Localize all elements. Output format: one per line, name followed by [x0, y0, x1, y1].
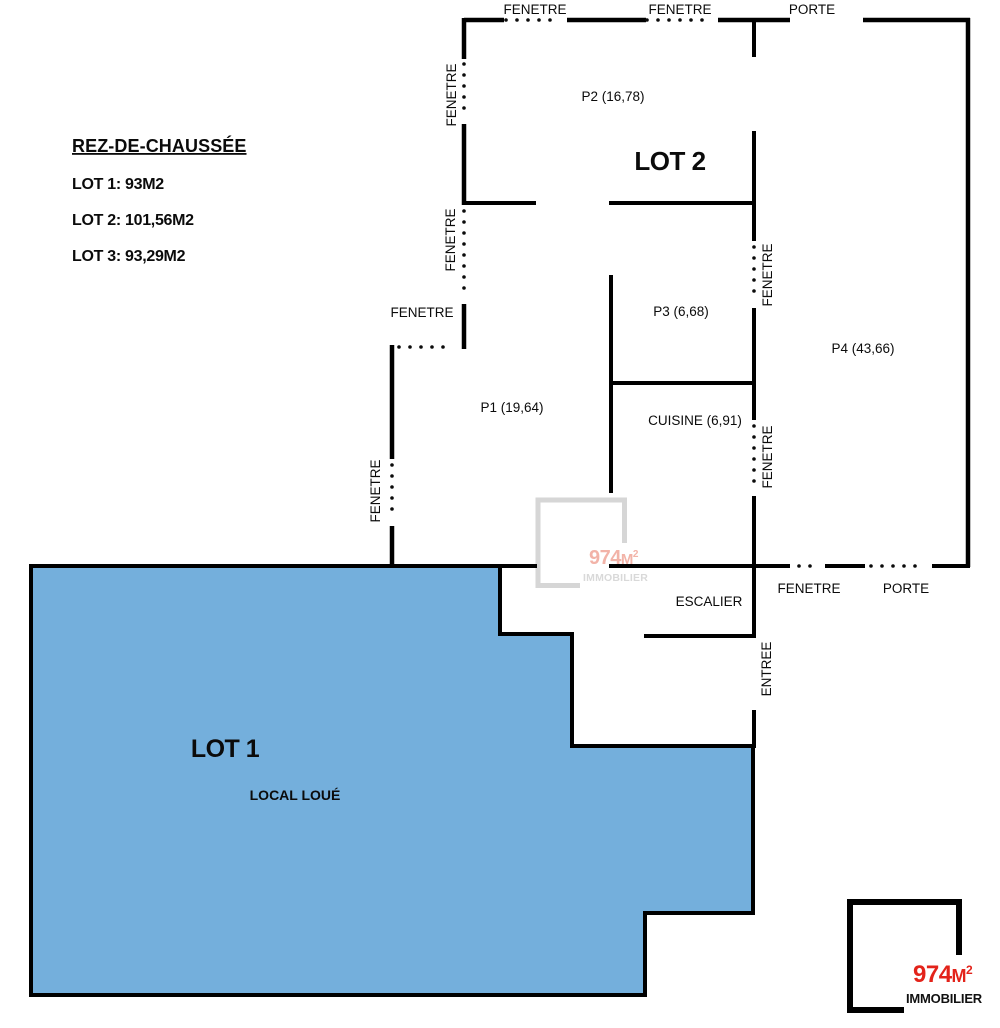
svg-text:IMMOBILIER: IMMOBILIER — [583, 572, 648, 584]
svg-text:LOCAL LOUÉ: LOCAL LOUÉ — [250, 787, 341, 803]
svg-text:ENTREE: ENTREE — [759, 642, 774, 697]
svg-text:P1 (19,64): P1 (19,64) — [480, 400, 543, 415]
svg-text:LOT 1: LOT 1 — [191, 735, 260, 763]
svg-text:FENETRE: FENETRE — [760, 425, 775, 488]
svg-text:LOT 2: LOT 2 — [634, 146, 705, 176]
svg-text:ESCALIER: ESCALIER — [676, 594, 743, 609]
svg-text:REZ-DE-CHAUSSÉE: REZ-DE-CHAUSSÉE — [72, 135, 247, 156]
svg-text:FENETRE: FENETRE — [368, 459, 383, 522]
svg-text:LOT 2: 101,56M2: LOT 2: 101,56M2 — [72, 212, 194, 229]
svg-text:FENETRE: FENETRE — [777, 581, 840, 596]
svg-text:FENETRE: FENETRE — [648, 2, 711, 17]
svg-text:P3 (6,68): P3 (6,68) — [653, 304, 709, 319]
svg-text:974M2: 974M2 — [913, 961, 973, 988]
svg-text:PORTE: PORTE — [789, 2, 835, 17]
svg-text:FENETRE: FENETRE — [390, 305, 453, 320]
svg-text:FENETRE: FENETRE — [443, 208, 458, 271]
svg-text:IMMOBILIER: IMMOBILIER — [906, 991, 983, 1006]
svg-text:FENETRE: FENETRE — [503, 2, 566, 17]
svg-text:P2 (16,78): P2 (16,78) — [581, 89, 644, 104]
svg-text:P4 (43,66): P4 (43,66) — [831, 341, 894, 356]
svg-text:FENETRE: FENETRE — [444, 63, 459, 126]
svg-text:LOT 1: 93M2: LOT 1: 93M2 — [72, 176, 164, 193]
svg-text:PORTE: PORTE — [883, 581, 929, 596]
svg-text:CUISINE (6,91): CUISINE (6,91) — [648, 413, 742, 428]
svg-text:FENETRE: FENETRE — [760, 243, 775, 306]
svg-text:LOT 3: 93,29M2: LOT 3: 93,29M2 — [72, 248, 186, 265]
